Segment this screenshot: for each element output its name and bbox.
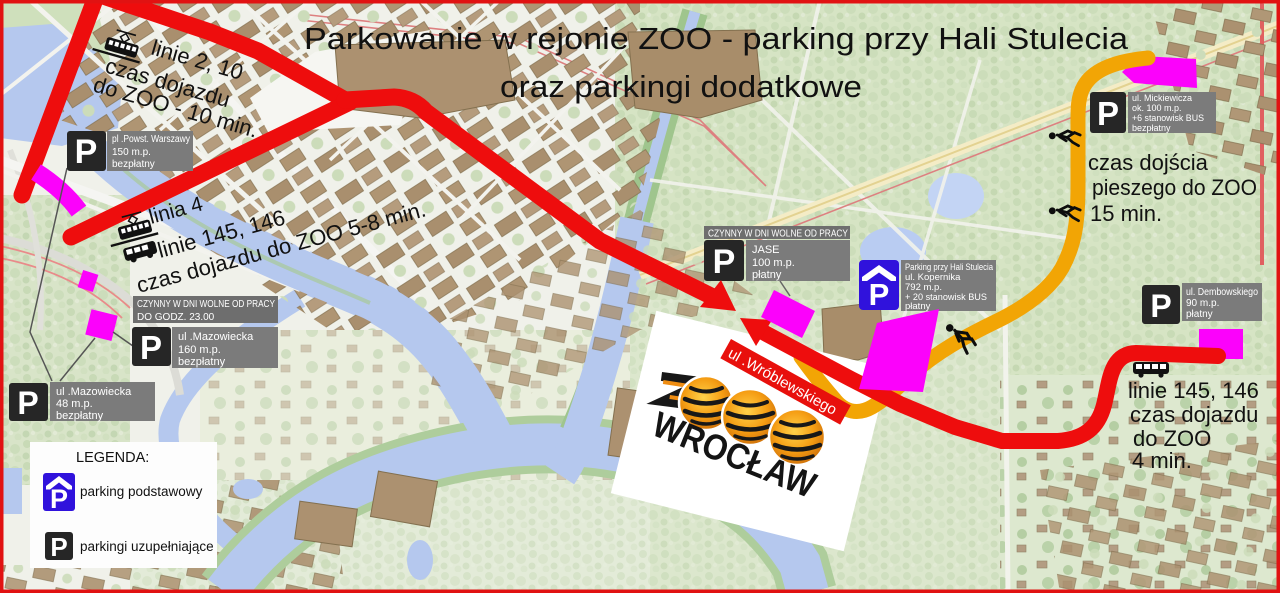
svg-text:czas dojazdu: czas dojazdu	[1130, 402, 1258, 427]
svg-text:CZYNNY W DNI WOLNE OD PRACY: CZYNNY W DNI WOLNE OD PRACY	[137, 299, 275, 310]
svg-text:+6 stanowisk BUS: +6 stanowisk BUS	[1132, 113, 1204, 123]
svg-text:P: P	[50, 484, 68, 514]
svg-text:P: P	[869, 277, 890, 312]
svg-text:90 m.p.: 90 m.p.	[1186, 298, 1219, 309]
svg-text:ul .Mazowiecka: ul .Mazowiecka	[178, 331, 254, 343]
svg-text:P: P	[1150, 288, 1171, 324]
svg-text:ul. Mickiewicza: ul. Mickiewicza	[1132, 93, 1192, 103]
svg-text:CZYNNY W DNI WOLNE OD PRACY: CZYNNY W DNI WOLNE OD PRACY	[708, 229, 848, 240]
svg-text:JASE: JASE	[752, 244, 780, 256]
svg-text:P: P	[75, 133, 98, 171]
svg-text:48 m.p.: 48 m.p.	[56, 398, 93, 410]
svg-text:ul. Dembowskiego: ul. Dembowskiego	[1186, 287, 1258, 298]
svg-text:P: P	[1097, 95, 1119, 132]
svg-text:LEGENDA:: LEGENDA:	[76, 450, 149, 466]
svg-text:parkingi uzupełniające: parkingi uzupełniające	[80, 539, 214, 554]
svg-text:ul .Mazowiecka: ul .Mazowiecka	[56, 386, 132, 398]
svg-text:bezpłatny: bezpłatny	[178, 356, 226, 368]
svg-text:4 min.: 4 min.	[1132, 448, 1192, 473]
svg-text:P: P	[713, 243, 736, 281]
svg-text:linie 145, 146: linie 145, 146	[1128, 378, 1259, 403]
svg-text:15 min.: 15 min.	[1090, 201, 1162, 226]
svg-text:oraz parkingi dodatkowe: oraz parkingi dodatkowe	[500, 69, 862, 104]
svg-text:pl .Powst. Warszawy: pl .Powst. Warszawy	[112, 134, 190, 145]
svg-text:P: P	[140, 329, 162, 366]
svg-text:płatny: płatny	[752, 269, 782, 281]
svg-text:bezpłatny: bezpłatny	[1132, 123, 1171, 133]
svg-text:DO GODZ. 23.00: DO GODZ. 23.00	[137, 312, 215, 323]
svg-text:P: P	[17, 385, 38, 421]
svg-text:pieszego do ZOO: pieszego do ZOO	[1092, 175, 1257, 200]
svg-text:150 m.p.: 150 m.p.	[112, 147, 151, 158]
svg-text:płatny: płatny	[1186, 309, 1213, 320]
svg-text:bezpłatny: bezpłatny	[112, 159, 155, 170]
svg-text:bezpłatny: bezpłatny	[56, 410, 104, 422]
svg-text:P: P	[50, 532, 67, 562]
svg-text:ok. 100 m.p.: ok. 100 m.p.	[1132, 103, 1182, 113]
svg-text:100 m.p.: 100 m.p.	[752, 257, 795, 269]
svg-text:160 m.p.: 160 m.p.	[178, 344, 221, 356]
svg-text:płatny: płatny	[905, 301, 931, 312]
svg-text:parking podstawowy: parking podstawowy	[80, 484, 203, 499]
svg-text:czas dojścia: czas dojścia	[1088, 150, 1209, 175]
svg-text:Parkowanie w rejonie ZOO - par: Parkowanie w rejonie ZOO - parking przy …	[304, 21, 1129, 56]
